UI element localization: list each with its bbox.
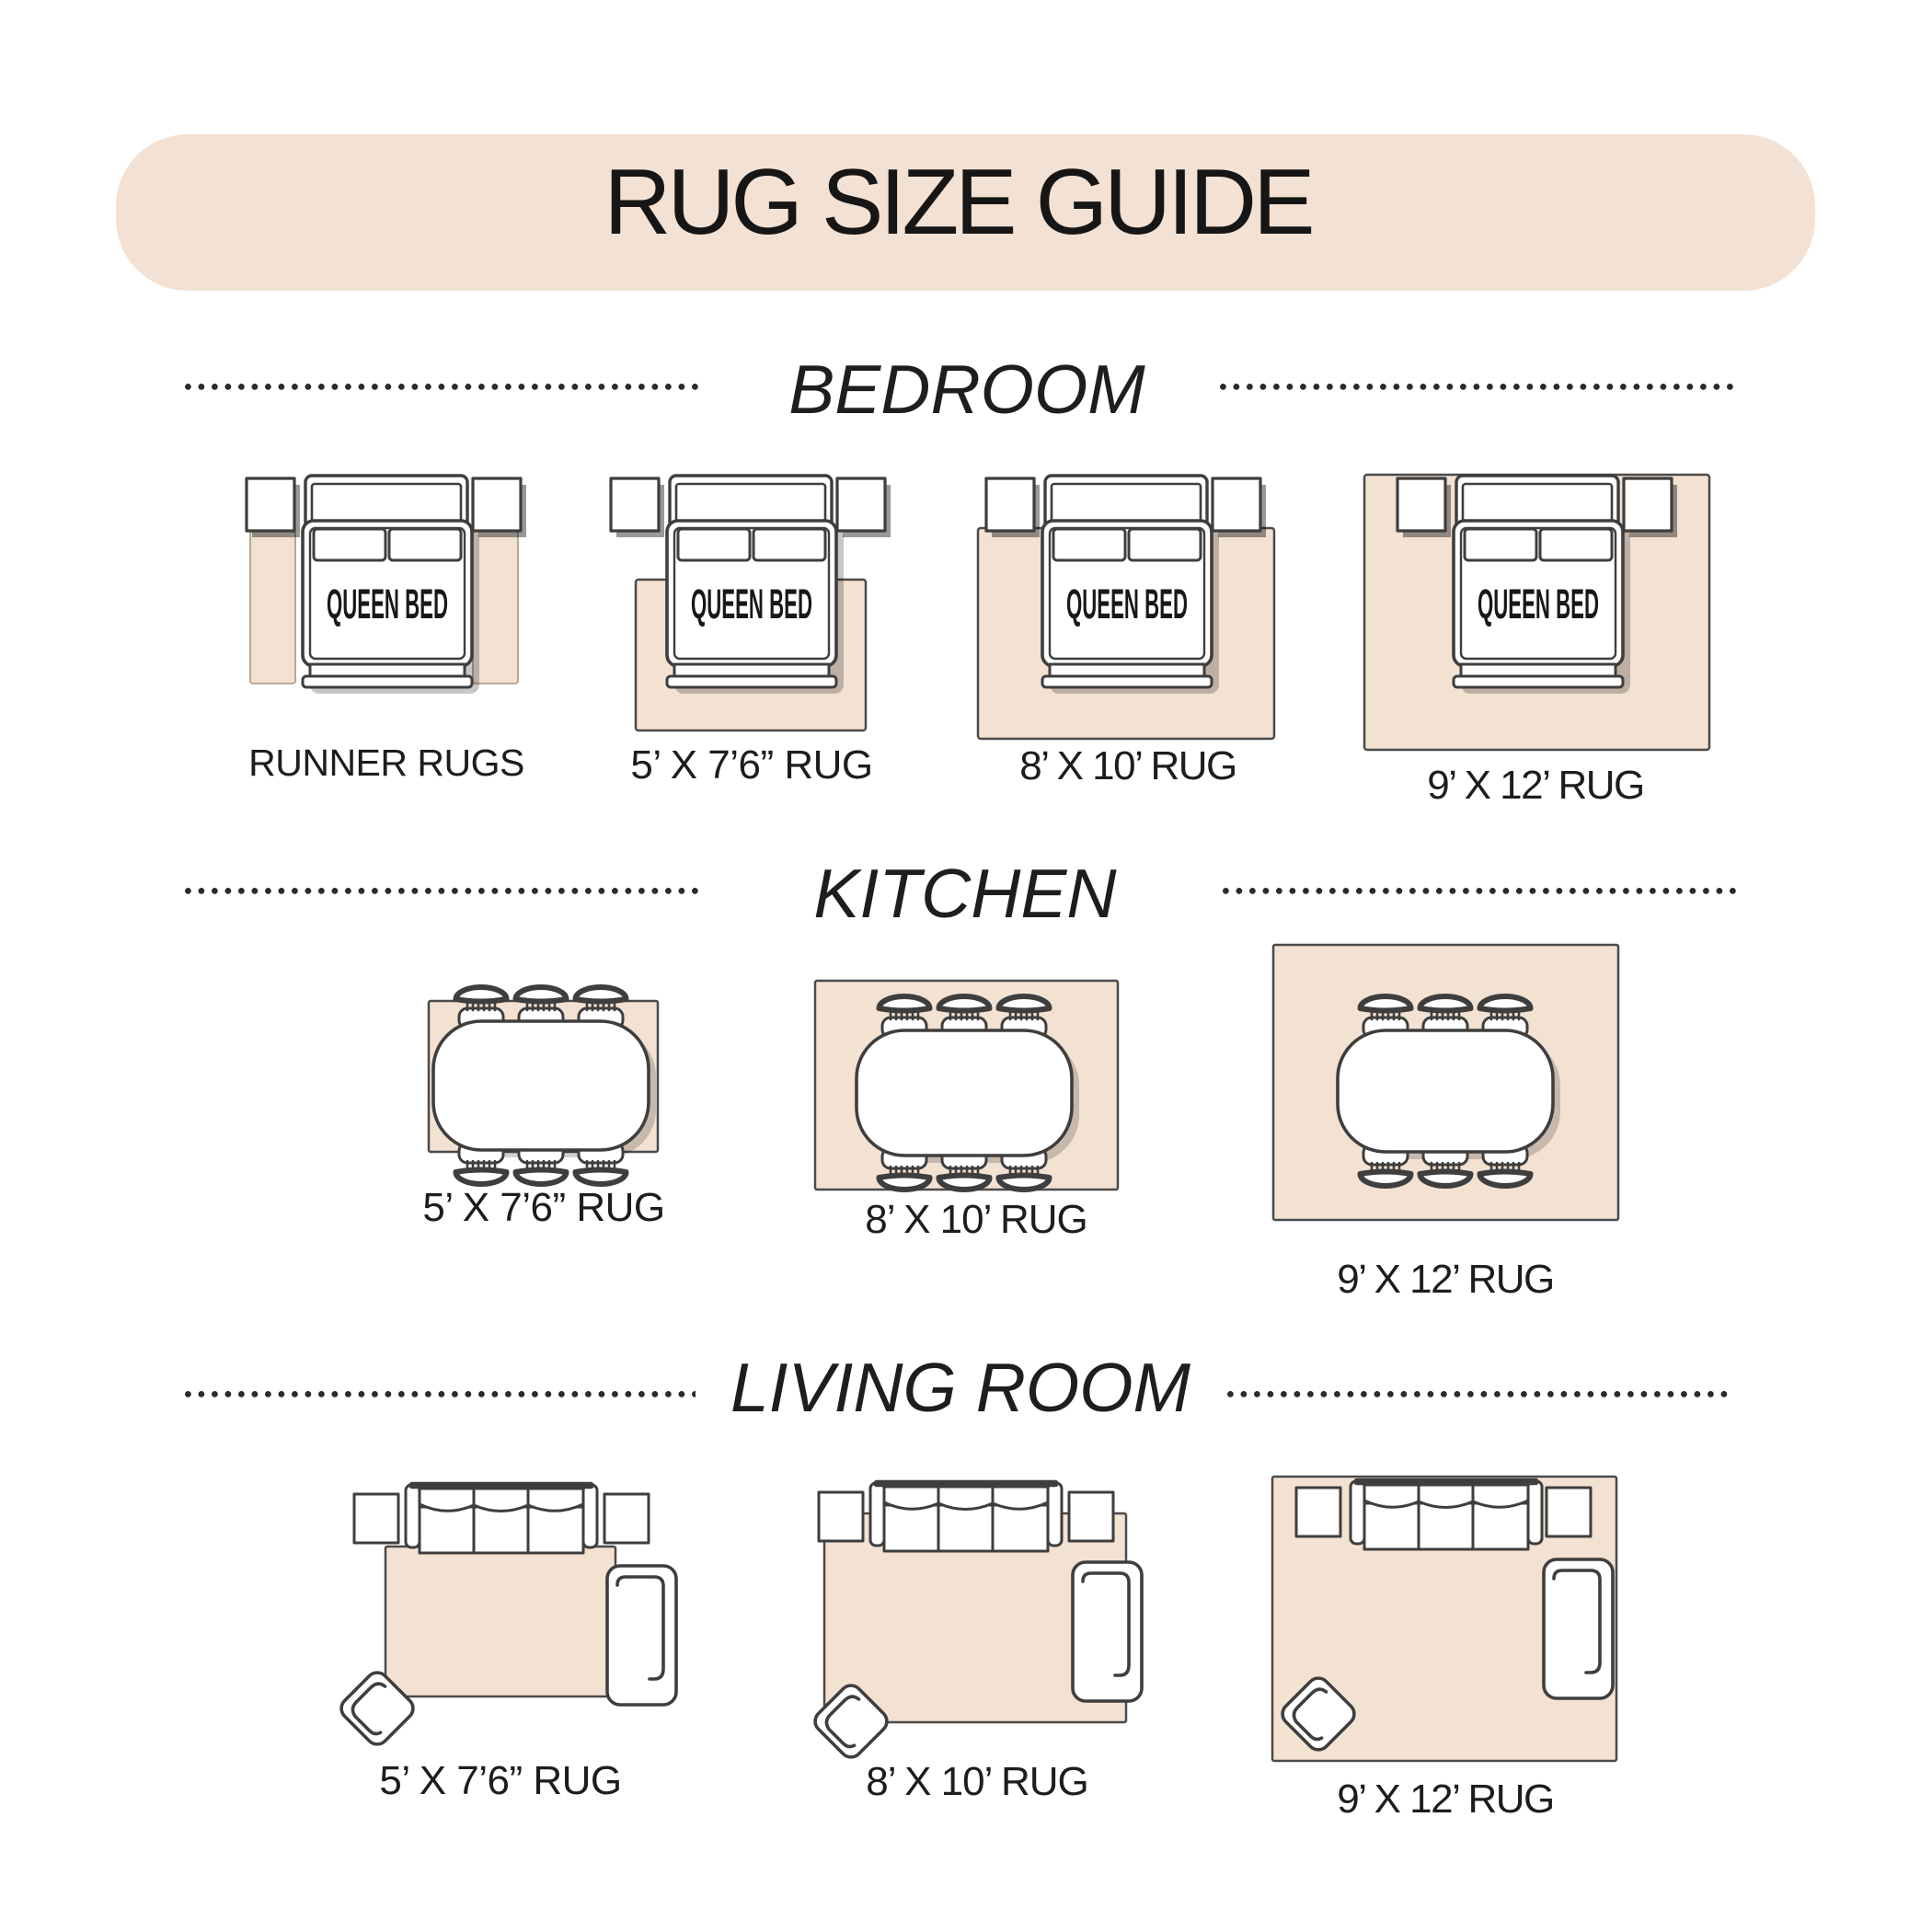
svg-text:5’ X 7’6” RUG: 5’ X 7’6” RUG bbox=[630, 742, 872, 788]
svg-text:8’ X 10’ RUG: 8’ X 10’ RUG bbox=[1019, 743, 1236, 788]
svg-text:9’ X 12’ RUG: 9’ X 12’ RUG bbox=[1427, 763, 1644, 808]
svg-text:5’ X 7’6” RUG: 5’ X 7’6” RUG bbox=[422, 1185, 664, 1230]
svg-text:RUNNER RUGS: RUNNER RUGS bbox=[248, 742, 524, 784]
svg-text:9’ X 12’ RUG: 9’ X 12’ RUG bbox=[1337, 1257, 1554, 1302]
svg-text:9’ X 12’ RUG: 9’ X 12’ RUG bbox=[1337, 1777, 1554, 1822]
svg-text:5’ X 7’6” RUG: 5’ X 7’6” RUG bbox=[379, 1758, 621, 1803]
svg-text:8’ X 10’ RUG: 8’ X 10’ RUG bbox=[865, 1197, 1087, 1242]
svg-text:8’ X 10’ RUG: 8’ X 10’ RUG bbox=[866, 1759, 1088, 1804]
